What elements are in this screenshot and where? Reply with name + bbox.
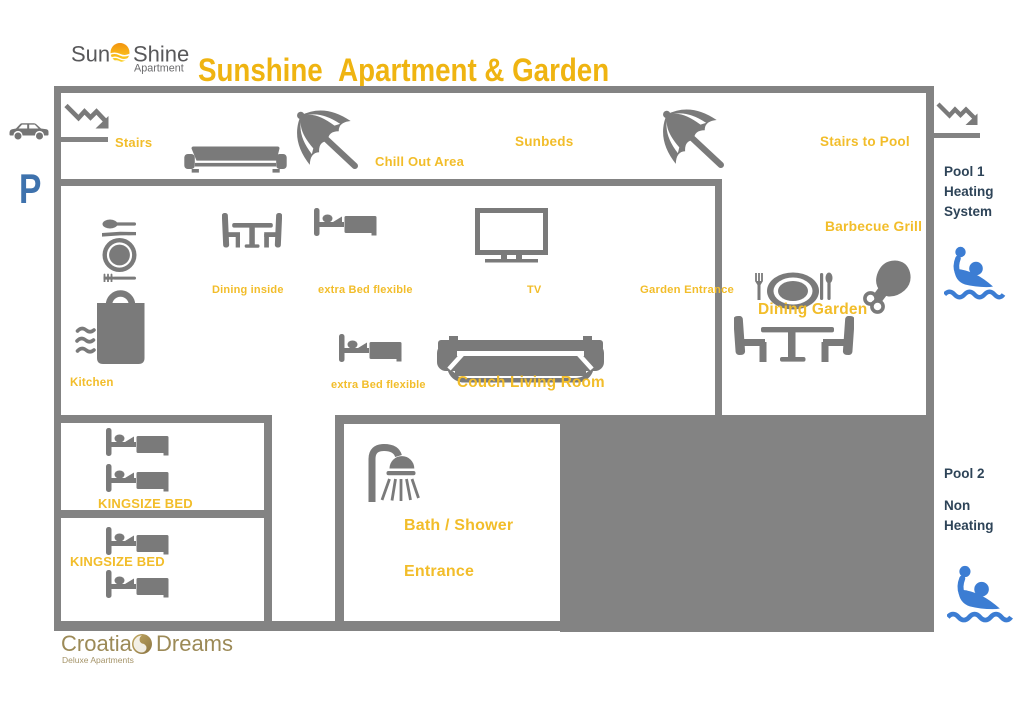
svg-text:Deluxe Apartments: Deluxe Apartments xyxy=(62,655,134,665)
svg-text:Sun: Sun xyxy=(71,42,110,67)
svg-text:Dreams: Dreams xyxy=(156,632,233,656)
svg-text:Croatia: Croatia xyxy=(61,632,133,656)
svg-text:Apartment: Apartment xyxy=(134,63,184,75)
